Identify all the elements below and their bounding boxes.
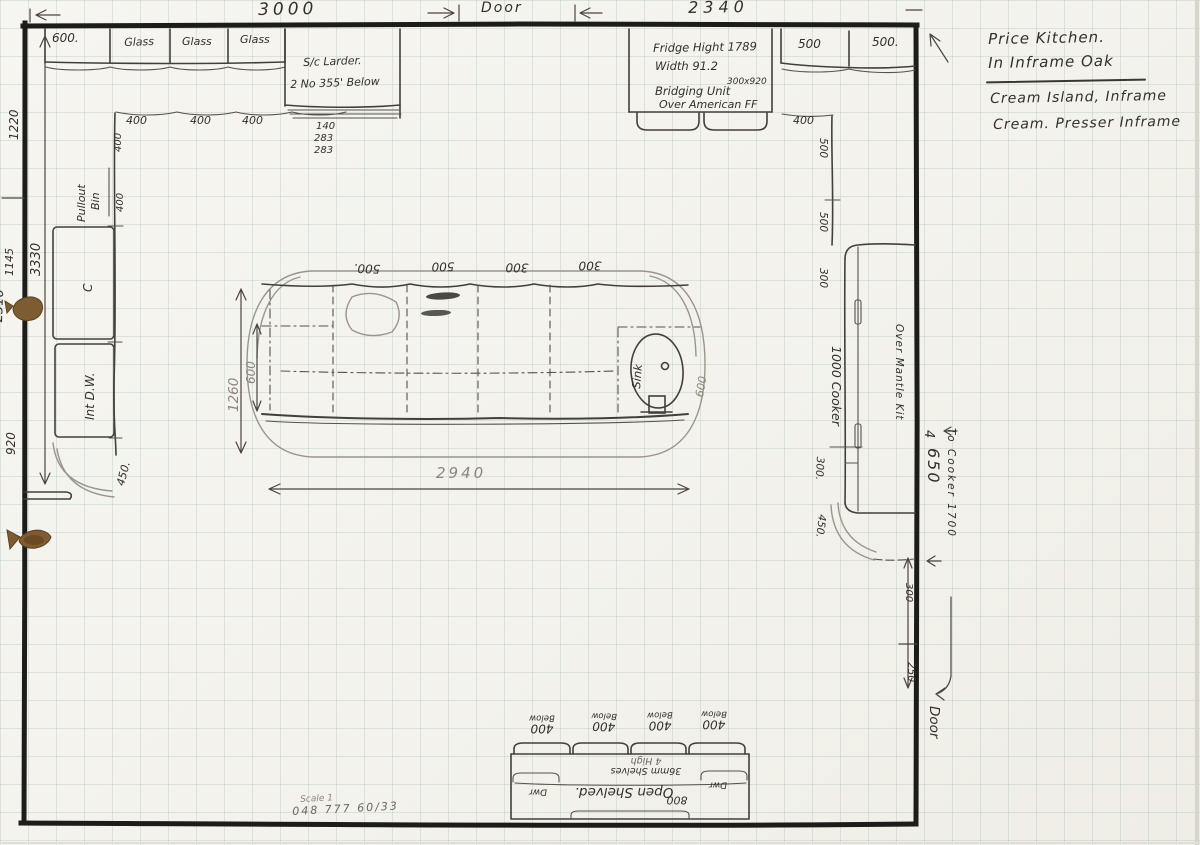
dresser-shelves-note: 36mm Shelves 4 High [596, 754, 696, 775]
label-dim-2340: 2340 [688, 0, 749, 17]
label-400-a: 400 [126, 115, 147, 127]
note-line-2: In Inframe Oak [988, 54, 1114, 72]
label-to-cooker-1700: To Cooker 1700 [945, 428, 956, 538]
label-glass-1: Glass [124, 36, 154, 49]
label-pullout: Pullout [76, 184, 88, 222]
label-dim-920: 920 [5, 432, 18, 455]
label-stack-283b: 283 [314, 146, 333, 157]
left-base-run [24, 112, 346, 499]
label-int-dw: Int D.W. [84, 373, 97, 420]
label-sink: Sink [630, 364, 644, 389]
label-door-right: Door [927, 706, 941, 738]
wall-bottom [21, 823, 916, 825]
island-label-300a: 300 [500, 261, 534, 274]
tap-hole [662, 363, 669, 370]
label-right-450: 450. [813, 514, 827, 539]
island-cabinets [262, 284, 700, 424]
dresser-shelves-line1: 36mm Shelves [596, 764, 696, 774]
label-over-mantle: Over Mantle Kit [893, 324, 904, 421]
label-dim-300-right: 300 [903, 583, 914, 602]
note-line-1: Price Kitchen. [988, 30, 1105, 48]
label-pullout-bin: Bin [90, 192, 102, 210]
label-door-top: Door [481, 1, 523, 16]
dresser-dwr-right: Dwr [700, 779, 736, 788]
label-dim-1260: 1260 [227, 378, 241, 412]
wall-top [23, 24, 917, 26]
right-base-run [782, 114, 840, 245]
dresser-label-2-num: 400 [581, 719, 627, 734]
label-fridge-4: Over American FF [659, 99, 757, 111]
label-right-300b: 300. [813, 456, 825, 480]
dresser-label-4-num: 400 [691, 717, 737, 731]
dimension-arrows [2, 5, 957, 700]
label-dim-250: 250 [905, 662, 916, 682]
label-400-v1: 400 [114, 133, 125, 152]
label-400-v2: 400 [116, 193, 127, 212]
larder-unit [285, 29, 401, 118]
label-glass-2: Glass [182, 36, 212, 48]
wall-left [24, 23, 25, 822]
label-stack-283a: 283 [314, 134, 333, 145]
dresser-label-4-txt: Below [691, 708, 737, 718]
scanned-kitchen-plan: 3000 Door 2340 Price Kitchen. In Inframe… [0, 0, 1200, 845]
corner-curve-bottom-left [53, 443, 114, 497]
label-dim-1145: 1145 [4, 248, 16, 276]
label-dim-650: 650 [924, 448, 941, 485]
label-400-b: 400 [190, 115, 211, 127]
label-dim-1220: 1220 [8, 109, 21, 140]
label-fridge-1: Fridge Hight 1789 [653, 40, 757, 54]
dresser-label-3-num: 400 [637, 718, 683, 732]
stain-blob-upper [13, 297, 43, 320]
label-dim-3000: 3000 [258, 1, 318, 20]
label-right-300: 300 [817, 268, 828, 288]
stains [5, 297, 51, 549]
dresser-label-1: 400 Below [517, 712, 567, 735]
stain-fish-lower-tail [7, 530, 20, 549]
door-arrow-left [428, 5, 459, 21]
door-arrow-right [575, 5, 602, 21]
top-right-corner-arrow [930, 34, 948, 62]
island-label-500b: 500 [426, 260, 460, 273]
label-glass-3: Glass [240, 34, 270, 46]
label-dim-2940: 2940 [436, 466, 486, 482]
label-unit-c: C [82, 284, 95, 292]
label-dim-2310: 2310 [0, 289, 7, 323]
label-stack-140: 140 [316, 122, 335, 133]
label-fridge-3: Bridging Unit [655, 85, 730, 97]
label-cab-500a: 500 [798, 38, 821, 51]
island-label-300b: 300 [573, 259, 607, 272]
dresser-label-4: 400 Below [691, 708, 737, 731]
dresser-shelves-line2: 4 High [596, 754, 696, 764]
label-right-500a: 500 [817, 138, 828, 158]
label-larder: S/c Larder. [303, 55, 362, 69]
label-larder-below: 2 No 355' Below [290, 76, 380, 91]
dresser-800: 800 [660, 794, 694, 806]
label-fridge-2: Width 91.2 [655, 60, 718, 72]
to-cooker-1700-line [936, 597, 951, 700]
top-left-arrow [30, 9, 60, 22]
dresser-label-1-txt: Below [517, 712, 567, 721]
label-400-c: 400 [242, 115, 263, 127]
label-cab-500b: 500. [872, 36, 899, 49]
label-right-500b: 500 [817, 212, 828, 232]
dresser-dwr-left: Dwr [520, 786, 556, 795]
wall-right [916, 25, 917, 824]
label-dim-4: 4 [921, 430, 935, 438]
dresser-label-3-txt: Below [637, 709, 683, 719]
note-line-3: Cream Island, Inframe [990, 89, 1167, 107]
dresser-label-3: 400 Below [637, 709, 683, 732]
dresser-label-2-txt: Below [581, 709, 627, 720]
label-cab-600: 600. [52, 32, 79, 45]
island-label-500a: 500. [345, 261, 389, 275]
label-cooker-1000: 1000 Cooker [830, 346, 843, 426]
island-width-arrow [269, 484, 689, 494]
note-line-4: Cream. Presser Inframe [993, 115, 1181, 133]
label-right-400: 400 [793, 115, 814, 127]
label-dim-3330: 3330 [30, 243, 44, 276]
hob-marks [346, 292, 460, 336]
dresser-label-1-num: 400 [517, 721, 567, 734]
label-dim-600-left: 600 [245, 361, 258, 384]
dresser-label-2: 400 Below [581, 709, 628, 733]
label-fridge-3sup: 300x920 [727, 78, 767, 87]
